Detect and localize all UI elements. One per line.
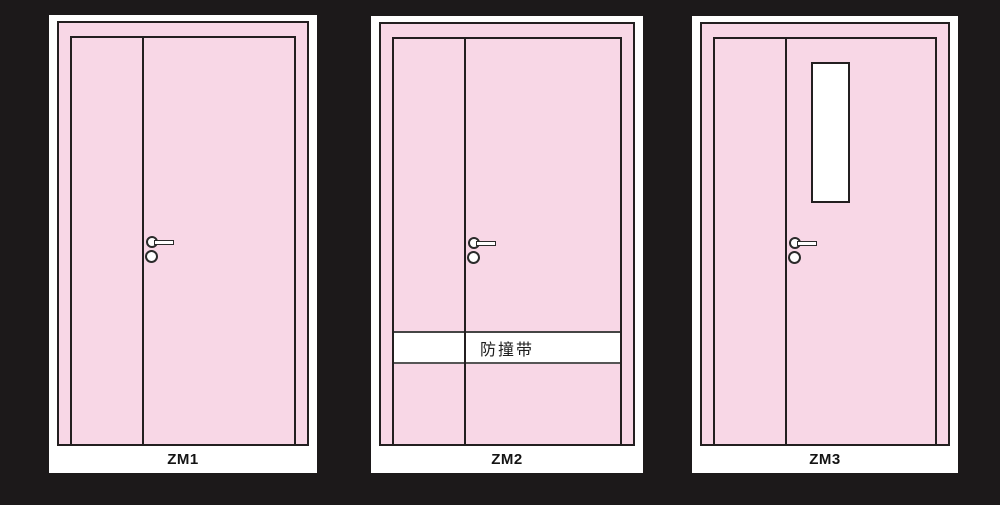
door-frame <box>57 21 309 446</box>
door-leaves: 防撞带 <box>392 37 622 444</box>
leaf-divider-line <box>142 38 144 444</box>
door-handle-lever-icon <box>797 241 817 246</box>
anti-collision-band: 防撞带 <box>394 331 620 364</box>
door-leaves <box>713 37 937 444</box>
door-label-zm3: ZM3 <box>692 446 958 473</box>
door-lock-cylinder-icon <box>145 250 158 263</box>
door-elevation-drawing: ZM1 防撞带 ZM2 ZM3 <box>0 0 1000 505</box>
door-frame <box>700 22 950 446</box>
leaf-divider-line <box>464 39 466 444</box>
door-frame: 防撞带 <box>379 22 635 446</box>
door-lock-cylinder-icon <box>788 251 801 264</box>
leaf-divider-line <box>785 39 787 444</box>
door-handle-lever-icon <box>476 241 496 246</box>
vision-panel-window <box>811 62 850 203</box>
door-unit-zm3: ZM3 <box>692 16 958 473</box>
door-leaves <box>70 36 296 444</box>
door-unit-zm2: 防撞带 ZM2 <box>371 16 643 473</box>
door-label-zm1: ZM1 <box>49 446 317 473</box>
door-handle-lever-icon <box>154 240 174 245</box>
door-unit-zm1: ZM1 <box>49 15 317 473</box>
door-label-zm2: ZM2 <box>371 446 643 473</box>
door-lock-cylinder-icon <box>467 251 480 264</box>
anti-collision-band-label: 防撞带 <box>480 336 534 360</box>
